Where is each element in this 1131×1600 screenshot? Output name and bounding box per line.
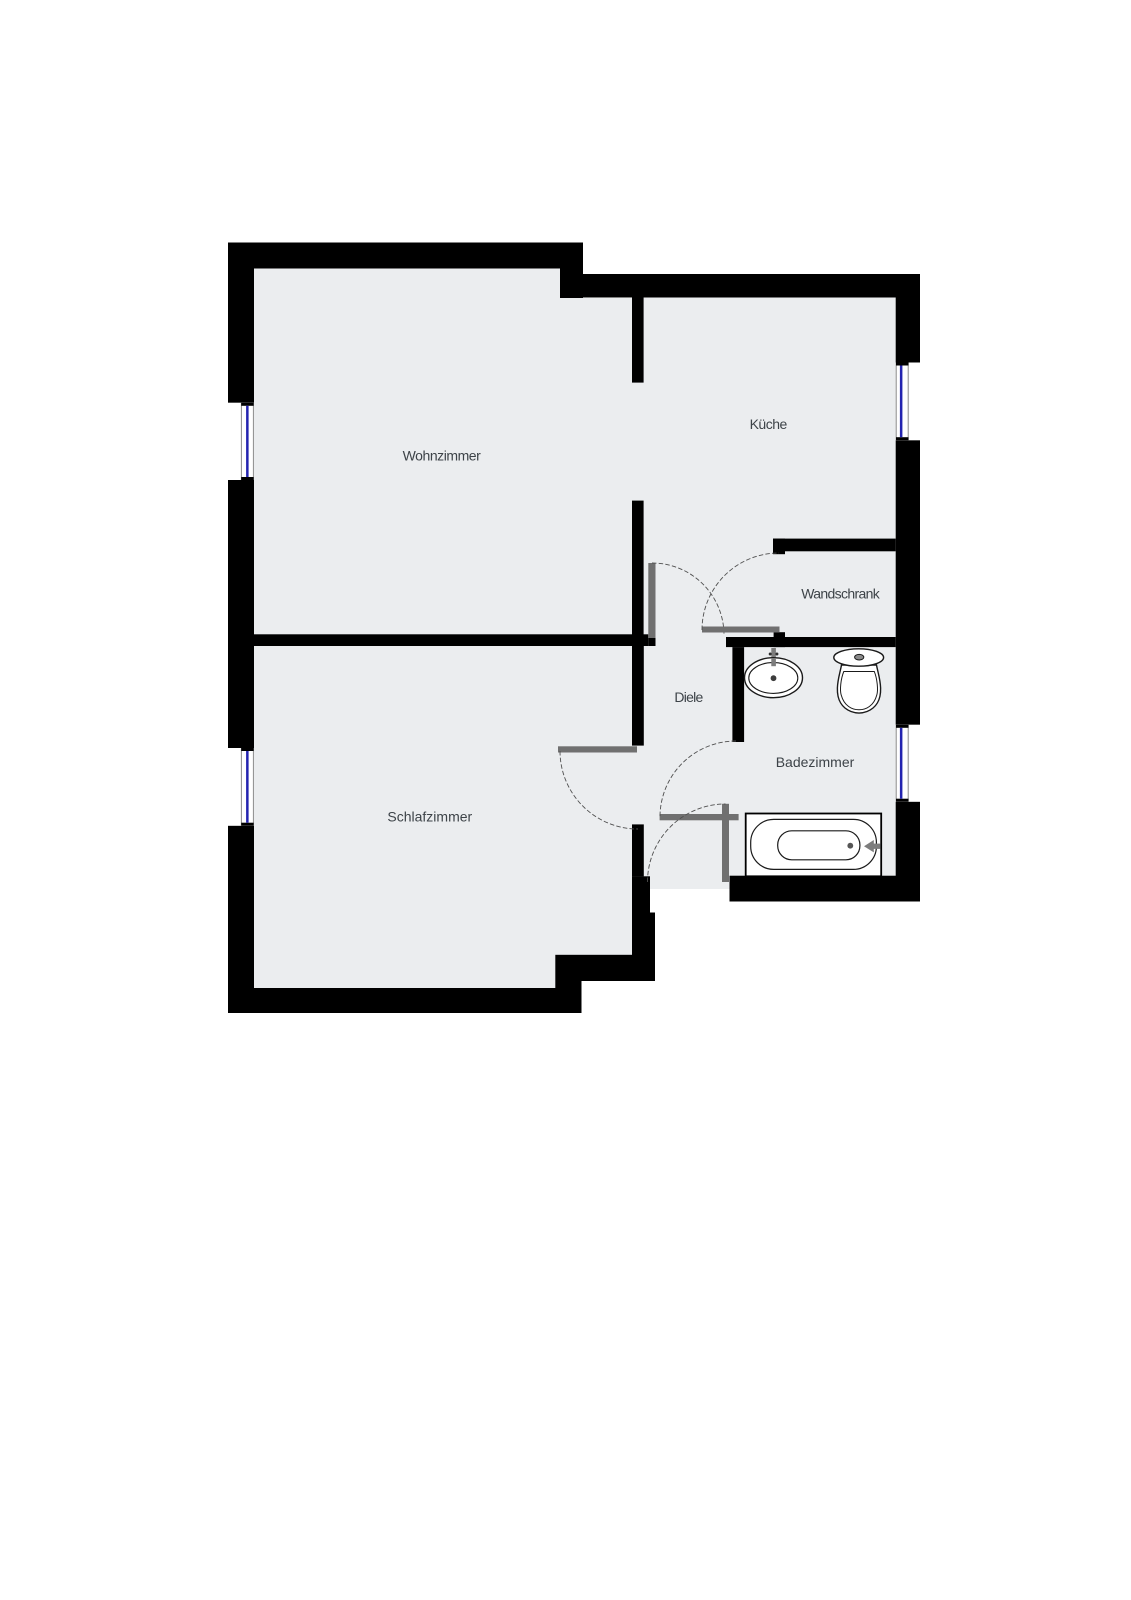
svg-text:Badezimmer: Badezimmer	[776, 754, 855, 770]
svg-text:Küche: Küche	[750, 416, 788, 432]
svg-text:Wandschrank: Wandschrank	[801, 586, 881, 602]
svg-text:Wohnzimmer: Wohnzimmer	[403, 448, 481, 464]
svg-text:Schlafzimmer: Schlafzimmer	[387, 809, 472, 825]
svg-text:Diele: Diele	[674, 689, 703, 705]
